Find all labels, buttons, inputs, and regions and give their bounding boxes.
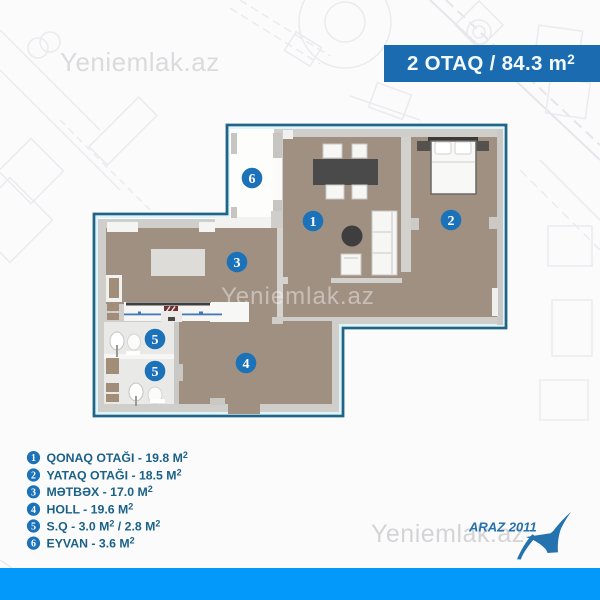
svg-text:2 OTAQ / 84.3 m2: 2 OTAQ / 84.3 m2 <box>407 52 575 75</box>
svg-text:YATAQ OTAĞI - 18.5 M2: YATAQ OTAĞI - 18.5 M2 <box>47 467 182 482</box>
svg-text:5: 5 <box>31 522 36 533</box>
svg-text:6: 6 <box>249 172 256 187</box>
svg-text:MƏTBƏX - 17.0 M2: MƏTBƏX - 17.0 M2 <box>47 484 153 499</box>
svg-text:1: 1 <box>31 453 36 464</box>
svg-text:S.Q - 3.0 M2 / 2.8 M2: S.Q - 3.0 M2 / 2.8 M2 <box>47 518 161 533</box>
svg-text:HOLL - 19.6 M2: HOLL - 19.6 M2 <box>47 502 134 517</box>
svg-text:QONAQ OTAĞI - 19.8 M2: QONAQ OTAĞI - 19.8 M2 <box>47 450 188 465</box>
svg-text:5: 5 <box>152 365 159 380</box>
svg-text:4: 4 <box>243 357 250 372</box>
svg-text:Yeniemlak.az: Yeniemlak.az <box>60 47 220 77</box>
svg-text:2: 2 <box>448 214 455 229</box>
svg-text:Yeniemlak.az: Yeniemlak.az <box>221 283 375 310</box>
svg-text:6: 6 <box>31 539 36 550</box>
svg-text:4: 4 <box>31 505 36 516</box>
svg-text:5: 5 <box>152 333 159 348</box>
svg-text:EYVAN - 3.6 M2: EYVAN - 3.6 M2 <box>47 536 135 551</box>
svg-text:2: 2 <box>31 471 36 482</box>
svg-text:1: 1 <box>310 215 317 230</box>
svg-text:ARAZ 2011: ARAZ 2011 <box>468 520 537 535</box>
svg-text:3: 3 <box>234 256 241 271</box>
svg-text:3: 3 <box>31 487 36 498</box>
